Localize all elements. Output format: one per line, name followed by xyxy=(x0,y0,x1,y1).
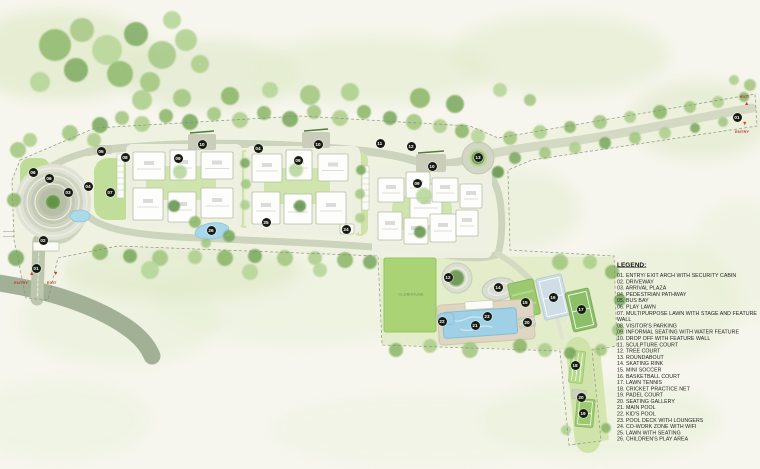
entry-arrow-icon: ▲ xyxy=(29,271,34,277)
map-marker-09: 09 xyxy=(174,154,183,163)
map-marker-20: 20 xyxy=(523,318,532,327)
map-marker-18: 18 xyxy=(571,361,580,370)
map-marker-04: 04 xyxy=(254,144,263,153)
map-marker-15: 15 xyxy=(521,298,530,307)
map-marker-10: 10 xyxy=(428,162,437,171)
exit-arrow-top-icon: ▲ xyxy=(744,101,749,107)
map-marker-11: 11 xyxy=(376,139,385,148)
entry-label-top: ENTRY xyxy=(735,130,749,134)
map-marker-06: 06 xyxy=(45,174,54,183)
map-marker-23: 23 xyxy=(483,312,492,321)
map-marker-08: 08 xyxy=(121,153,130,162)
clubhouse-label: CLUBHOUSE xyxy=(398,293,423,297)
map-marker-05: 05 xyxy=(97,147,106,156)
exit-label-top: EXIT xyxy=(740,95,750,99)
entry-arrow-top-icon: ▼ xyxy=(742,121,747,127)
map-marker-06: 06 xyxy=(29,168,38,177)
legend-title: LEGEND: xyxy=(617,261,760,269)
map-marker-01: 01 xyxy=(733,113,742,122)
legend-item-07: 07. MULTIPURPOSE LAWN WITH STAGE AND FEA… xyxy=(617,310,760,323)
map-marker-13: 13 xyxy=(474,153,483,162)
legend-list: 01. ENTRY/ EXIT ARCH WITH SECURITY CABIN… xyxy=(617,273,760,443)
faint-road-label xyxy=(3,231,15,232)
exit-arrow-icon: ▼ xyxy=(53,271,58,277)
map-marker-16: 16 xyxy=(549,293,558,302)
map-marker-20: 20 xyxy=(577,393,586,402)
exit-label-bottom: EXIT xyxy=(47,281,57,285)
entry-label-bottom: ENTRY xyxy=(14,281,28,285)
legend-item-26: 26. CHILDREN'S PLAY AREA xyxy=(617,436,760,442)
map-marker-10: 10 xyxy=(198,140,207,149)
faint-road-label xyxy=(3,236,15,237)
map-marker-12: 12 xyxy=(444,273,453,282)
map-marker-10: 10 xyxy=(314,140,323,149)
map-marker-17: 17 xyxy=(577,305,586,314)
map-marker-19: 19 xyxy=(579,409,588,418)
site-plan-canvas: 0506060304070802010910042625091024111213… xyxy=(0,0,760,469)
map-marker-09: 09 xyxy=(294,156,303,165)
map-marker-25: 25 xyxy=(262,218,271,227)
map-marker-24: 24 xyxy=(342,225,351,234)
map-marker-09: 09 xyxy=(413,179,422,188)
map-marker-14: 14 xyxy=(494,283,503,292)
legend-panel: LEGEND: 01. ENTRY/ EXIT ARCH WITH SECURI… xyxy=(617,261,759,469)
map-marker-07: 07 xyxy=(106,188,115,197)
map-marker-02: 02 xyxy=(39,236,48,245)
map-marker-22: 22 xyxy=(438,317,447,326)
map-marker-03: 03 xyxy=(64,188,73,197)
map-marker-12: 12 xyxy=(407,142,416,151)
map-marker-26: 26 xyxy=(207,226,216,235)
map-marker-04: 04 xyxy=(84,182,93,191)
map-marker-21: 21 xyxy=(471,321,480,330)
